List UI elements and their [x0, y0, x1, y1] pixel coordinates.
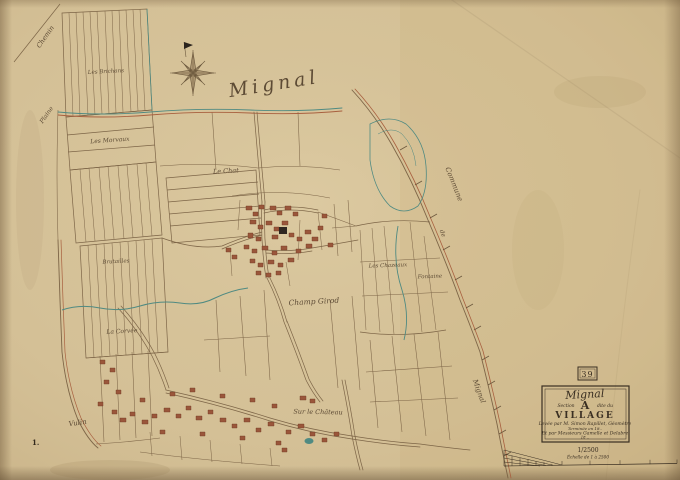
- lieu-dit-label: Le Chat: [212, 166, 240, 175]
- cartouche-section-suffix: dite du: [597, 403, 613, 409]
- lieu-dit-label: Sur le Château: [293, 408, 342, 417]
- sheet-corner-number: 1.: [32, 438, 39, 447]
- cartouche-credit-2: Terminée en 18..: [568, 426, 602, 431]
- stain: [554, 76, 646, 108]
- cartouche-section-name: VILLAGE: [554, 411, 614, 421]
- stain: [50, 460, 170, 480]
- stain: [16, 110, 44, 290]
- cadastral-map-scan: Mignal Chemin Plaine Vulin Commune de Mi…: [0, 0, 680, 480]
- cartouche-section-prefix: Section: [557, 403, 574, 409]
- lieu-dit-label: Fontaine: [417, 274, 443, 281]
- cartouche-credit-4: 18 ..: [581, 435, 589, 440]
- plate-number: 39: [581, 370, 593, 379]
- edge-shadow-left: [0, 0, 12, 480]
- stain: [512, 190, 564, 310]
- scale-caption-text: Échelle de 1 à 2500: [566, 455, 609, 460]
- edge-shadow-top: [0, 0, 680, 8]
- church-block: [279, 227, 287, 234]
- edge-shadow-right: [664, 0, 680, 480]
- scale-ratio-text: 1/2500: [577, 447, 598, 454]
- map-canvas: Mignal Chemin Plaine Vulin Commune de Mi…: [0, 0, 680, 480]
- pond: [305, 438, 314, 444]
